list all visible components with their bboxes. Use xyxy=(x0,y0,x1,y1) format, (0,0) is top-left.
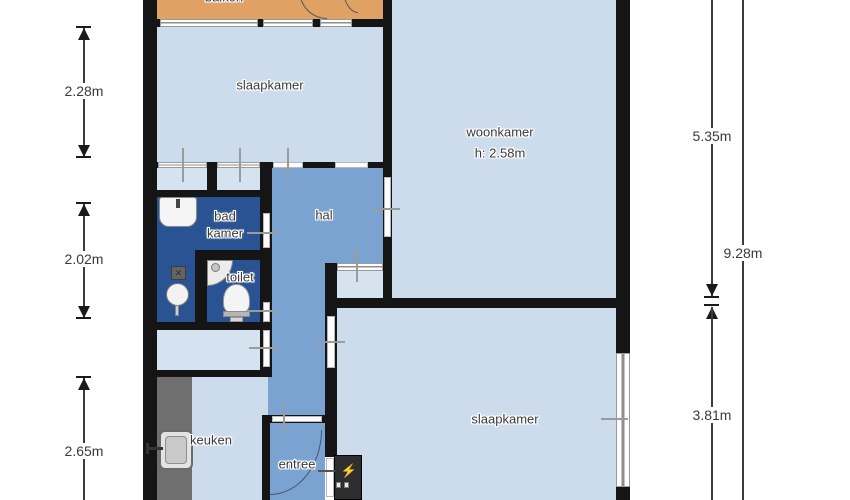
room-label-woonkamer: woonkamer xyxy=(466,125,533,140)
wall-kitchen-top xyxy=(143,370,268,377)
room-label-toilet: toilet xyxy=(226,270,253,285)
door-tick xyxy=(316,341,345,343)
room-label-slaapkamer-bottom: slaapkamer xyxy=(471,412,538,427)
dimension-arrow-up xyxy=(78,204,90,216)
kitchen-tap-icon xyxy=(147,447,163,450)
wall-bedroom-livingroom xyxy=(383,0,392,300)
dimension-line xyxy=(711,0,713,296)
door-tick xyxy=(356,248,358,282)
closet-left xyxy=(157,330,260,370)
door-tick xyxy=(283,403,285,431)
toilet-door xyxy=(263,302,270,322)
dimension-label: 9.28m xyxy=(721,245,766,261)
closet-right xyxy=(337,271,383,298)
door-tick xyxy=(247,232,278,234)
bathroom-sink-tap-icon xyxy=(176,199,180,208)
dimension-arrow-up xyxy=(78,378,90,390)
floor-plan: ✕ ⚡ balkon slaapkamer woonkamer h: 2.58m… xyxy=(0,0,850,500)
dimension-label: 5.35m xyxy=(690,128,735,144)
room-label-hal: hal xyxy=(315,208,332,223)
window-tick xyxy=(601,418,628,420)
room-label-woonkamer-height: h: 2.58m xyxy=(475,146,526,161)
meter-cabinet-door xyxy=(326,458,334,497)
dimension-arrow-down xyxy=(706,284,718,296)
door-tick xyxy=(372,208,400,210)
balcony-window xyxy=(320,19,352,27)
wall-entree-left xyxy=(262,423,270,500)
meter-module-icon xyxy=(344,482,349,488)
door-tick xyxy=(247,310,276,312)
toilet-cistern-icon xyxy=(230,317,243,322)
shower-drain-icon: ✕ xyxy=(171,266,186,280)
kitchen-tap-handle-icon xyxy=(146,443,149,454)
dimension-label: 3.81m xyxy=(690,407,735,423)
wall-closet-bottom xyxy=(157,190,260,197)
room-label-slaapkamer-top: slaapkamer xyxy=(236,78,303,93)
room-slaapkamer-bottom xyxy=(337,308,616,500)
dimension-endbar xyxy=(76,156,91,158)
toilet-bowl-icon xyxy=(223,284,250,314)
bedroom-bottom-window xyxy=(616,353,630,487)
wall-closet-post xyxy=(207,162,217,190)
dimension-endbar xyxy=(704,304,719,306)
wall-livingroom-bottom xyxy=(325,298,616,308)
dimension-endbar xyxy=(704,296,719,298)
wall-bathroom-bottom xyxy=(143,322,272,330)
dimension-endbar xyxy=(76,317,91,319)
entree-door xyxy=(272,416,322,422)
hall-top-door xyxy=(335,162,368,168)
dimension-label: 2.02m xyxy=(62,251,107,267)
room-label-balkon: balkon xyxy=(205,0,243,5)
livingroom-door xyxy=(384,177,391,237)
dimension-line xyxy=(83,378,85,500)
meter-module-icon xyxy=(336,482,341,488)
room-label-badkamer-line2: kamer xyxy=(207,226,243,241)
lightning-bolt-icon: ⚡ xyxy=(338,462,360,480)
door-tick xyxy=(249,347,278,349)
door-tick xyxy=(287,148,289,180)
shower-head-stem-icon xyxy=(175,305,179,316)
shower-head-icon xyxy=(166,283,189,306)
door-tick xyxy=(182,148,184,182)
room-hal-corridor xyxy=(268,263,325,415)
corner-basin-tap-icon xyxy=(211,263,220,272)
room-label-badkamer-line1: bad xyxy=(214,209,236,224)
dimension-label: 2.28m xyxy=(62,83,107,99)
bathroom-door xyxy=(263,213,270,248)
wall-outer-left xyxy=(143,0,157,500)
wall-toilet-left xyxy=(195,250,207,322)
room-label-entree: entree xyxy=(279,457,316,472)
room-slaapkamer-top xyxy=(157,27,383,162)
balcony-window xyxy=(160,19,258,27)
entree-leader-line xyxy=(318,470,335,472)
kitchen-sink-basin-icon xyxy=(165,436,187,464)
dimension-arrow-up xyxy=(78,28,90,40)
door-tick xyxy=(239,148,241,182)
dimension-line xyxy=(711,307,713,500)
closet-right-window xyxy=(337,263,383,271)
balcony-door xyxy=(263,19,313,27)
room-label-keuken: keuken xyxy=(190,433,232,448)
dimension-label: 2.65m xyxy=(62,443,107,459)
